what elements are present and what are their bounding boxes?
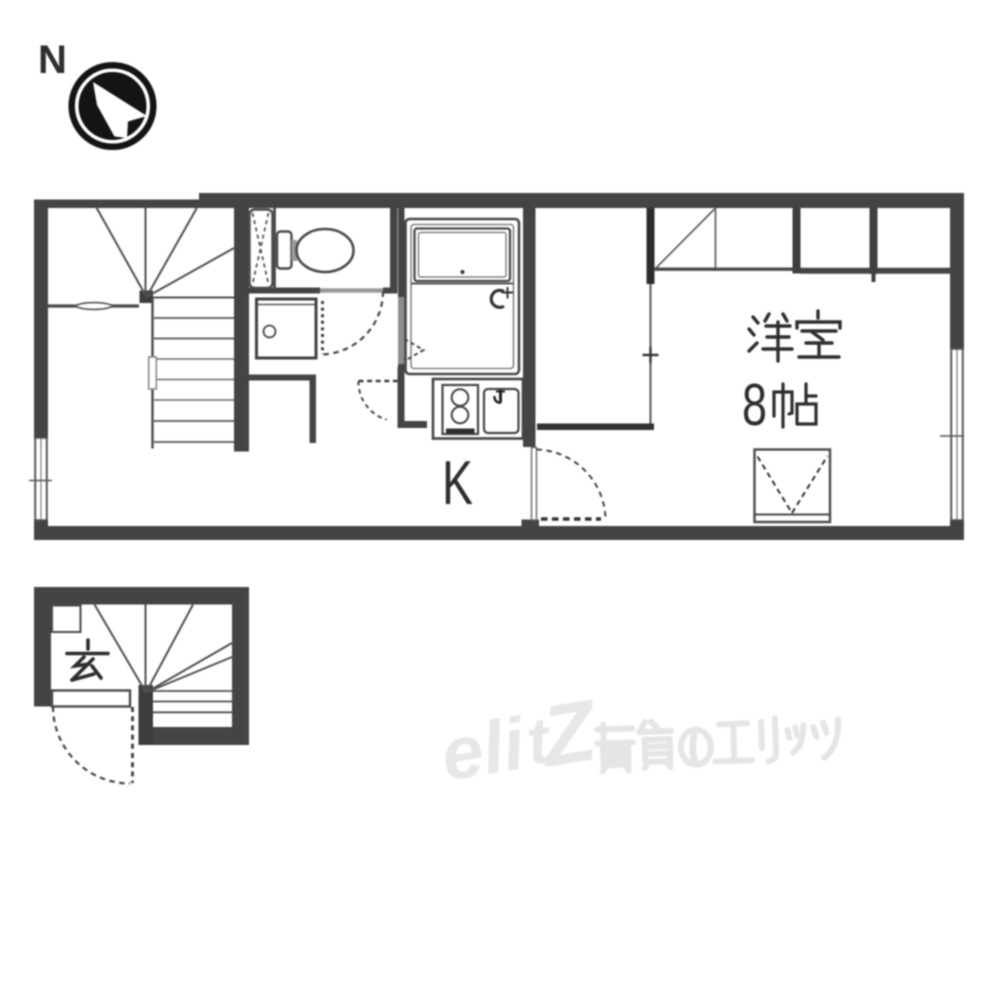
svg-text:8: 8 bbox=[742, 372, 767, 438]
svg-text:N: N bbox=[38, 38, 67, 82]
svg-text:eli: eli bbox=[436, 701, 532, 796]
svg-text:K: K bbox=[442, 449, 473, 518]
